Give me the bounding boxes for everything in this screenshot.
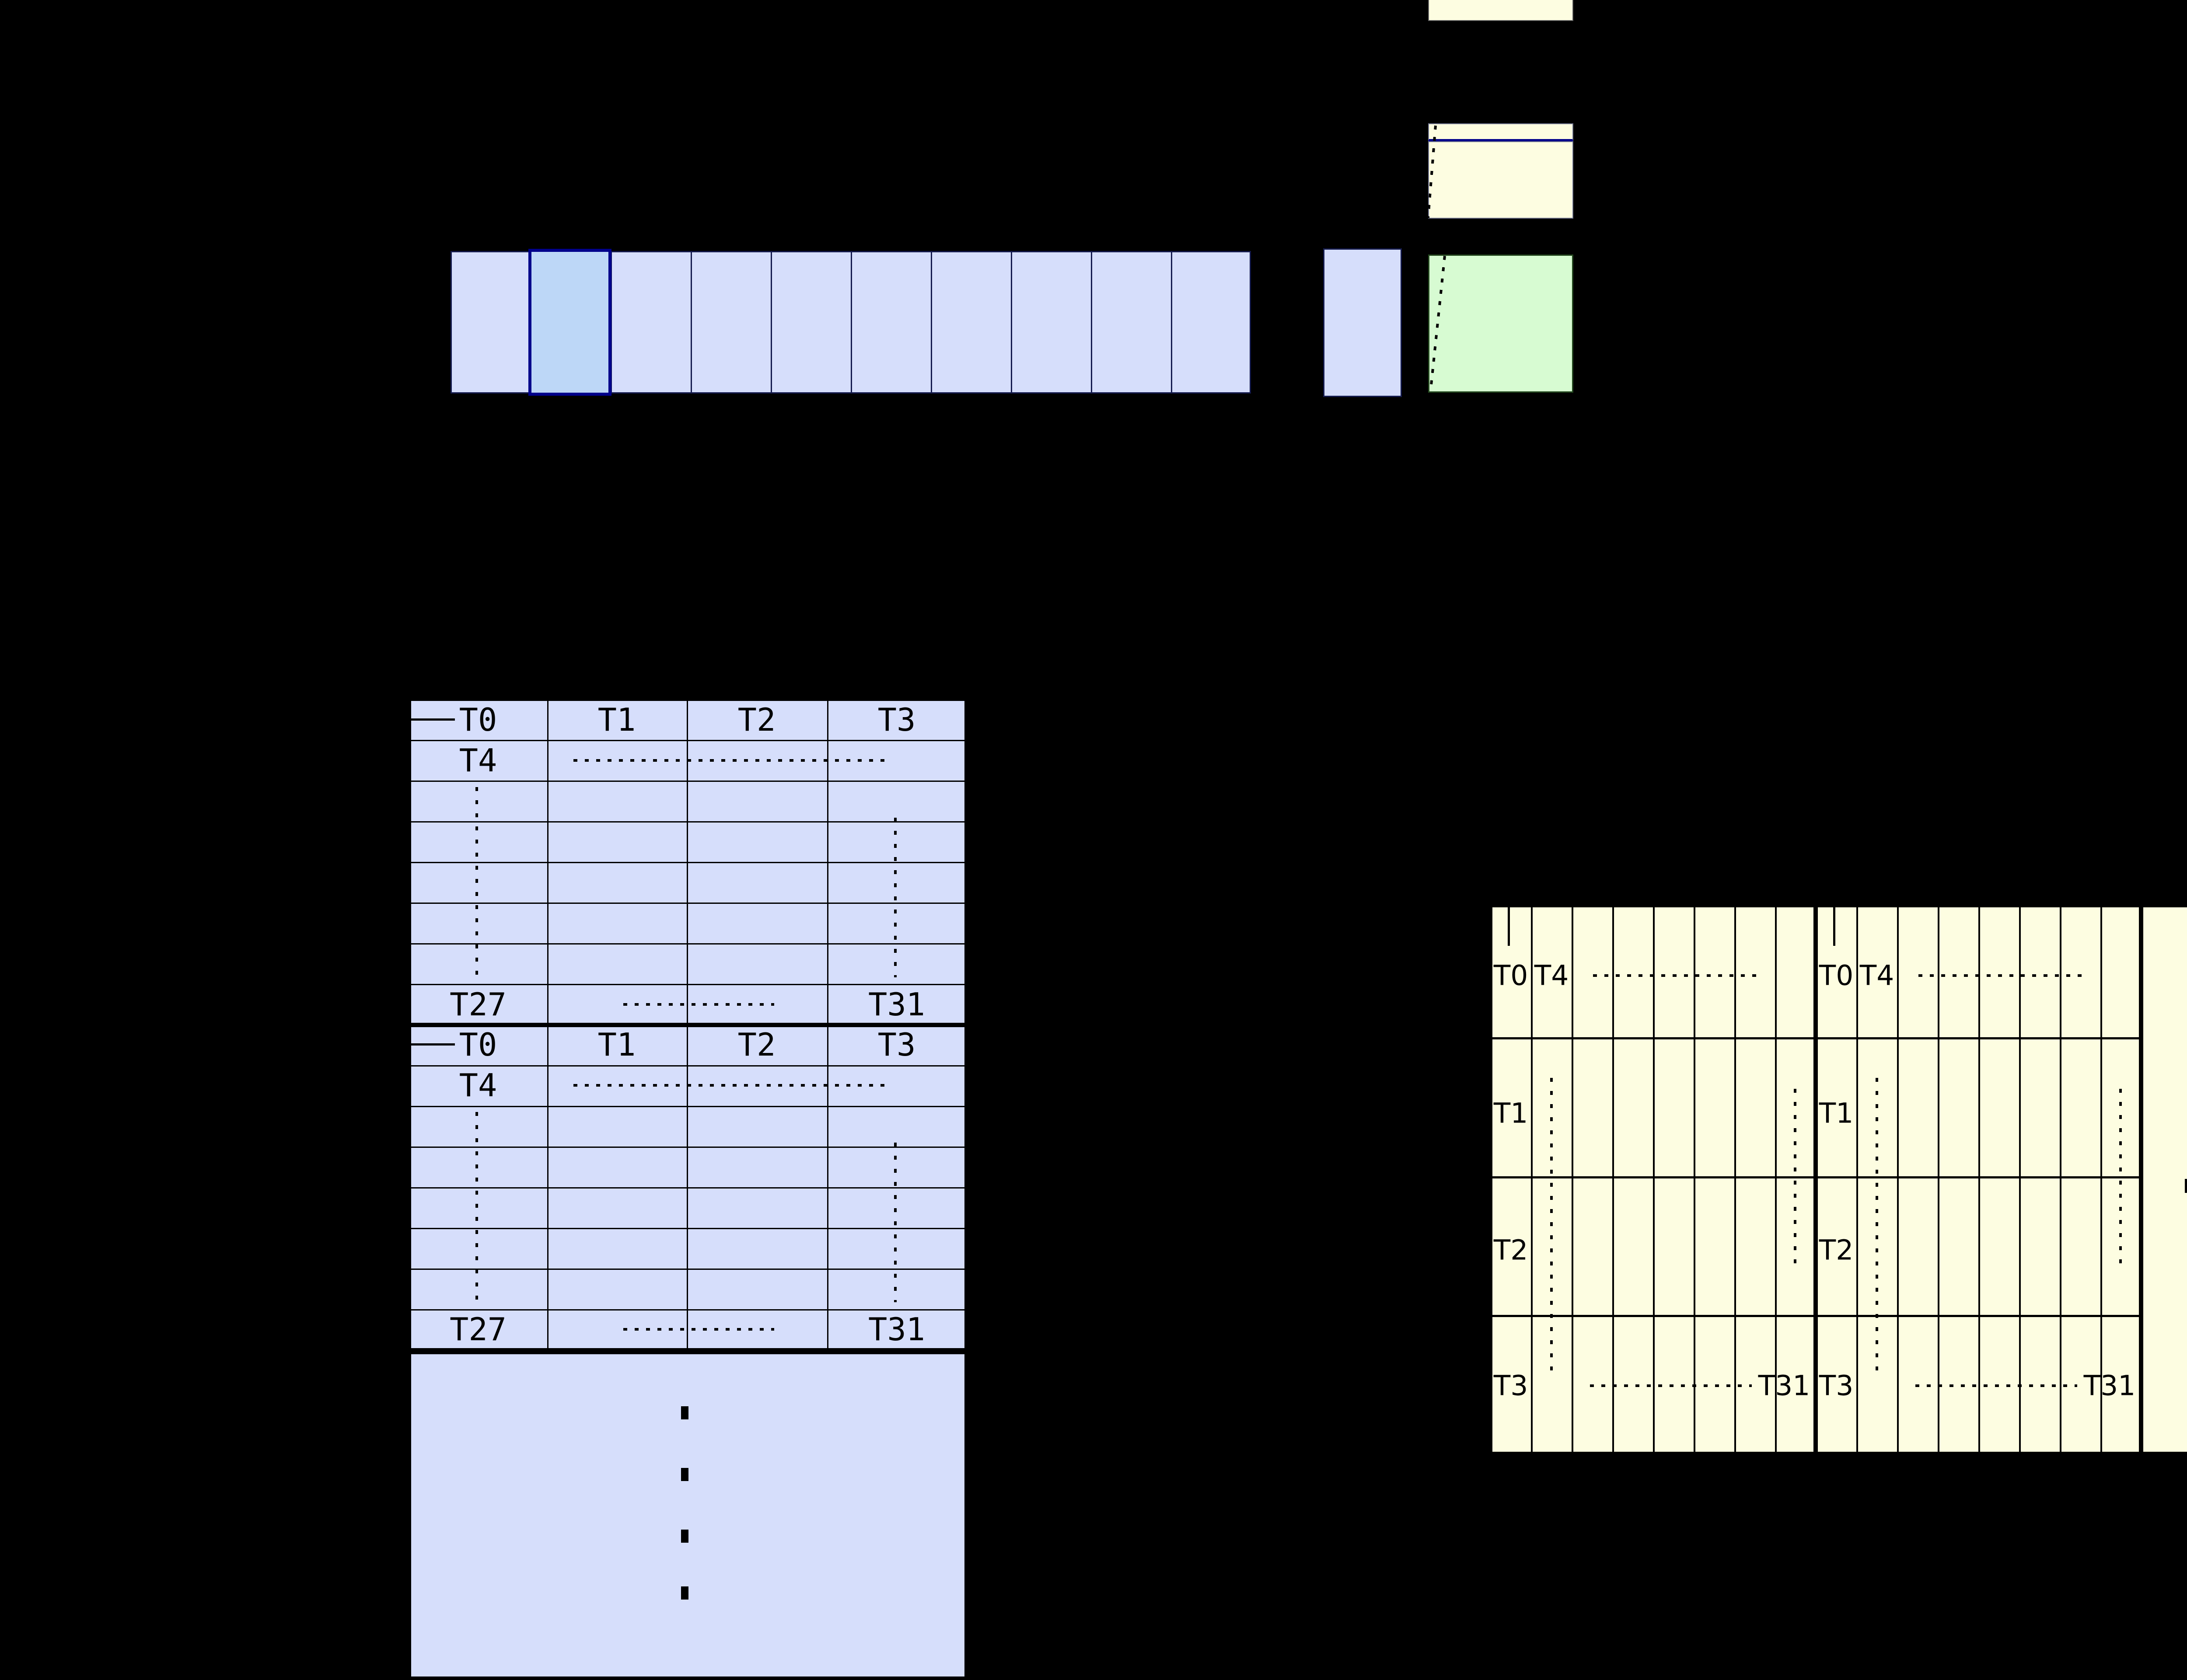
ellipsis-dots-horizontal xyxy=(1915,1384,2077,1387)
grid-vline xyxy=(2019,905,2021,1454)
grid-vline xyxy=(1572,905,1573,1454)
grid-vline xyxy=(1612,905,1614,1454)
grid-hline xyxy=(409,1309,966,1311)
cell-divider xyxy=(851,252,852,392)
cell-divider xyxy=(1171,252,1172,392)
grid-vline xyxy=(1978,905,1980,1454)
thread-label: T4 xyxy=(459,1067,497,1104)
grid-hline xyxy=(409,1228,966,1229)
grid-hline xyxy=(409,1269,966,1270)
big-ellipsis-dot xyxy=(681,1468,688,1481)
thread-label: T0 xyxy=(1819,960,1854,992)
thread-label: T27 xyxy=(450,986,507,1023)
leader-tick xyxy=(1833,907,1835,946)
cell-divider xyxy=(691,252,692,392)
ellipsis-dots-vertical xyxy=(2119,1089,2122,1270)
grid-vline xyxy=(1694,905,1695,1454)
grid-hline xyxy=(409,1187,966,1189)
highlighted-memory-cell xyxy=(528,249,611,396)
yellow-box-top xyxy=(1428,0,1573,21)
grid-hline xyxy=(409,1147,966,1148)
bank-group-separator xyxy=(1813,905,1818,1454)
grid-vline xyxy=(1897,905,1899,1454)
cell-divider xyxy=(771,252,772,392)
grid-hline xyxy=(1490,1176,2143,1178)
grid-hline xyxy=(409,1065,966,1067)
grid-hline xyxy=(409,943,966,945)
thread-label: T4 xyxy=(459,742,497,779)
ellipsis-dots-horizontal xyxy=(1918,974,2082,977)
big-ellipsis-dot xyxy=(2185,1179,2187,1193)
grid-vline xyxy=(1856,905,1858,1454)
ellipsis-dots-vertical xyxy=(475,1112,478,1307)
thread-label: T0 xyxy=(1494,960,1528,992)
grid-vline xyxy=(1734,905,1736,1454)
big-ellipsis-dot xyxy=(681,1586,688,1600)
cell-divider xyxy=(931,252,932,392)
ellipsis-dots-horizontal xyxy=(1590,1384,1752,1387)
continuation-block xyxy=(409,1350,966,1678)
leader-line xyxy=(411,1043,455,1046)
thread-label: T3 xyxy=(878,701,916,738)
thread-label: T31 xyxy=(868,986,925,1023)
thread-label: T1 xyxy=(598,701,636,738)
ellipsis-dots-horizontal xyxy=(623,1328,774,1331)
grid-vline xyxy=(1653,905,1655,1454)
ellipsis-dots-horizontal xyxy=(1593,974,1757,977)
grid-vline xyxy=(1531,905,1533,1454)
thread-label: T2 xyxy=(738,701,776,738)
grid-hline xyxy=(409,862,966,863)
big-ellipsis-dot xyxy=(681,1530,688,1543)
thread-label: T3 xyxy=(1494,1370,1528,1402)
thread-label: T31 xyxy=(1758,1370,1810,1402)
thread-label: T27 xyxy=(450,1311,507,1348)
grid-hline xyxy=(409,821,966,823)
thread-label: T1 xyxy=(598,1026,636,1063)
ellipsis-dots-vertical xyxy=(894,1143,897,1302)
leader-line xyxy=(411,718,455,721)
bank-group-separator xyxy=(2139,905,2143,1454)
thread-label: T1 xyxy=(1819,1098,1854,1129)
thread-label: T4 xyxy=(1534,960,1569,992)
green-box xyxy=(1428,254,1573,393)
thread-label: T2 xyxy=(1819,1234,1854,1266)
thread-label: T3 xyxy=(878,1026,916,1063)
ellipsis-dots-vertical xyxy=(475,787,478,982)
grid-hline xyxy=(1490,1315,2143,1317)
grid-vline xyxy=(2060,905,2061,1454)
ellipsis-dots-horizontal xyxy=(623,1003,774,1006)
cell-divider xyxy=(1011,252,1012,392)
grid-hline xyxy=(409,903,966,904)
thread-label: T31 xyxy=(2084,1370,2136,1402)
ellipsis-dots-vertical xyxy=(894,818,897,977)
ellipsis-dots-vertical xyxy=(1794,1089,1796,1270)
ellipsis-dots-vertical xyxy=(1550,1078,1553,1377)
thread-label: T2 xyxy=(738,1026,776,1063)
cell-divider xyxy=(1091,252,1092,392)
memory-cell-detached xyxy=(1323,248,1402,397)
ellipsis-dots-horizontal xyxy=(573,759,888,762)
thread-label: T31 xyxy=(868,1311,925,1348)
big-ellipsis-dot xyxy=(681,1406,688,1419)
thread-label: T3 xyxy=(1819,1370,1854,1402)
thread-label: T4 xyxy=(1860,960,1894,992)
leader-tick xyxy=(1508,907,1510,946)
thread-label: T2 xyxy=(1494,1234,1528,1266)
grid-hline xyxy=(409,781,966,782)
grid-hline xyxy=(409,1106,966,1107)
grid-hline xyxy=(1490,1037,2143,1039)
thread-label: T1 xyxy=(1494,1098,1528,1129)
thread-label: T0 xyxy=(459,701,497,738)
diagram-canvas: T0 T1 T2 T3 T4 T27 T31 T0 T1 T2 T3 T4 T2… xyxy=(0,0,2187,1680)
grid-vline xyxy=(1938,905,1939,1454)
ellipsis-dots-vertical xyxy=(1876,1078,1878,1377)
grid-hline xyxy=(409,984,966,985)
grid-hline xyxy=(409,740,966,741)
ellipsis-dots-horizontal xyxy=(573,1084,888,1087)
yellow-strip xyxy=(1428,123,1573,141)
yellow-box-mid xyxy=(1428,141,1573,219)
thread-label: T0 xyxy=(459,1026,497,1063)
